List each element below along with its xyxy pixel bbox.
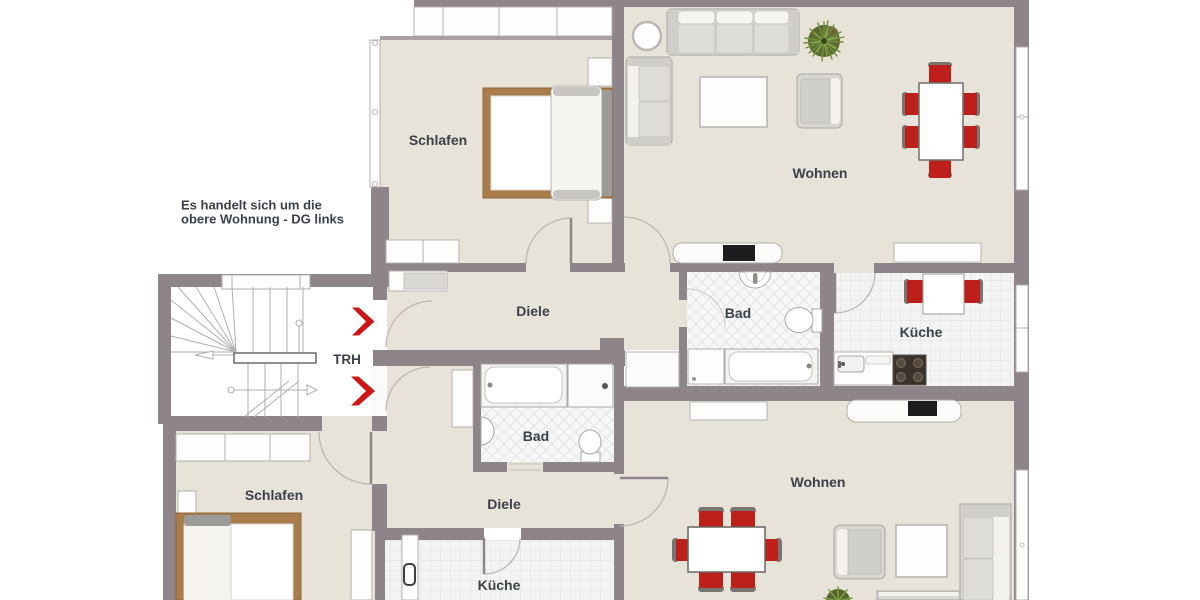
svg-text:Diele: Diele xyxy=(487,496,521,512)
svg-text:Bad: Bad xyxy=(725,305,751,321)
svg-text:obere Wohnung - DG links: obere Wohnung - DG links xyxy=(181,212,344,227)
svg-text:Küche: Küche xyxy=(478,577,521,593)
svg-text:Wohnen: Wohnen xyxy=(791,474,846,490)
svg-text:Schlafen: Schlafen xyxy=(245,487,303,503)
svg-text:Diele: Diele xyxy=(516,303,550,319)
svg-text:TRH: TRH xyxy=(333,352,361,367)
svg-text:Wohnen: Wohnen xyxy=(793,165,848,181)
svg-text:Bad: Bad xyxy=(523,428,549,444)
svg-text:Küche: Küche xyxy=(900,324,943,340)
svg-text:Es handelt sich um die: Es handelt sich um die xyxy=(181,198,322,213)
svg-text:Schlafen: Schlafen xyxy=(409,132,467,148)
